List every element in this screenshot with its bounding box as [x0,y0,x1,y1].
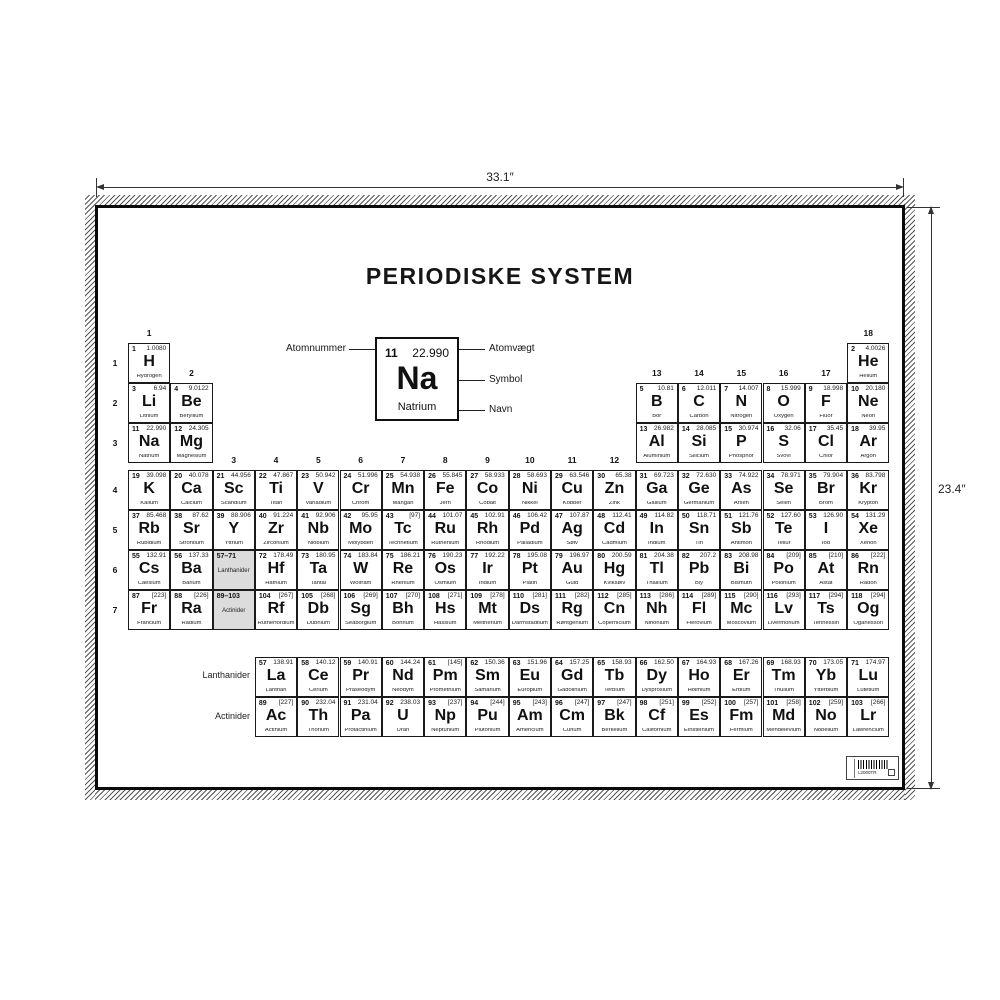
element-name: Nikkel [510,501,550,507]
element-name: Fermium [721,728,761,734]
atomic-number: 24 [344,473,352,480]
element-cell: 47107.87AgSølv [551,510,593,550]
element-symbol: Ni [510,480,550,498]
element-name: Lanthan [256,688,296,694]
element-symbol: Ho [679,667,719,685]
atomic-number: 28 [513,473,521,480]
element-cell: 3272.630GeGermanium [678,470,720,510]
period-number-label: 2 [108,399,122,408]
element-cell: 510.81BBor [636,383,678,423]
element-cell: 73180.95TaTantal [297,550,339,590]
element-name: Ruthenium [425,541,465,547]
atomic-weight: [243] [533,700,547,707]
lanthanide-cell: 60144.24NdNeodym [382,657,424,697]
element-symbol: N [721,393,761,411]
dimension-arrow-left-icon [96,184,104,190]
lanthanide-cell: 65158.93TbTerbium [593,657,635,697]
element-name: Caesium [129,581,169,587]
group-number-label: 1 [128,329,170,338]
element-cell: 44101.07RuRuthenium [424,510,466,550]
atomic-weight: [278] [490,593,504,600]
element-name: Vanadium [298,501,338,507]
element-cell: 815.999OOxygen [763,383,805,423]
element-cell: 4091.224ZrZirconium [255,510,297,550]
element-symbol: Fm [721,707,761,725]
atomic-number: 114 [682,593,693,600]
element-name: Neodym [383,688,423,694]
element-name: Meitnerium [467,621,507,627]
element-symbol: Rb [129,520,169,538]
element-name: Cerium [298,688,338,694]
element-cell: 1735.45ClChlor [805,423,847,463]
atomic-number: 87 [132,593,140,600]
atomic-number: 23 [301,473,309,480]
element-name: Oxygen [764,414,804,420]
period-number-label: 3 [108,439,122,448]
element-symbol: Tc [383,520,423,538]
placeholder-range: 57–71 [217,553,236,560]
element-symbol: Pt [510,560,550,578]
element-cell: 2144.956ScScandium [213,470,255,510]
lanthanide-cell: 66162.50DyDysprosium [636,657,678,697]
element-name: Kobber [552,501,592,507]
element-cell: 54131.29XeXenon [847,510,889,550]
element-cell: 612.011CCarbon [678,383,720,423]
element-name: Palladium [510,541,550,547]
element-symbol: Yb [806,667,846,685]
atomic-weight: [269] [363,593,377,600]
actinide-cell: 89[227]AcActinium [255,697,297,737]
element-symbol: Zn [594,480,634,498]
atomic-weight: 65.38 [615,473,631,480]
element-symbol: Kr [848,480,888,498]
atomic-weight: 58.693 [527,473,547,480]
atomic-weight: [282] [575,593,589,600]
element-cell: 4192.906NbNiobium [297,510,339,550]
atomic-number: 90 [301,700,309,707]
group-number-label: 18 [847,329,889,338]
atomic-number: 105 [301,593,313,600]
element-name: Rutherfordium [256,621,296,627]
atomic-weight: 196.97 [569,553,589,560]
actinide-cell: 103[266]LrLawrencium [847,697,889,737]
atomic-number: 110 [513,593,524,600]
element-name: Actinium [256,728,296,734]
element-cell: 117[294]TsTennessin [805,590,847,630]
element-name: Titan [256,501,296,507]
element-symbol: Og [848,600,888,618]
element-symbol: Te [764,520,804,538]
atomic-number: 102 [809,700,821,707]
atomic-number: 88 [174,593,182,600]
element-name: Polonium [764,581,804,587]
atomic-weight: 4.0026 [866,346,886,353]
element-cell: 76190.23OsOsmium [424,550,466,590]
actinide-cell: 102[259]NoNobelium [805,697,847,737]
atomic-weight: 101.07 [443,513,463,520]
element-cell: 2963.546CuKobber [551,470,593,510]
actinide-cell: 98[251]CfCalifornium [636,697,678,737]
element-name: Thallium [637,581,677,587]
element-name: Zirconium [256,541,296,547]
element-name: Indium [637,541,677,547]
atomic-weight: 207.2 [700,553,716,560]
element-symbol: Lr [848,707,888,725]
atomic-weight: [270] [406,593,420,600]
lanthanide-cell: 62150.36SmSamarium [466,657,508,697]
element-cell: 3478.971SeSelen [763,470,805,510]
lanthanide-cell: 63151.96EuEuropium [509,657,551,697]
element-symbol: Li [129,393,169,411]
group-number-label: 10 [509,456,551,465]
element-name: Brom [806,501,846,507]
element-symbol: Fe [425,480,465,498]
element-name: Argon [848,454,888,460]
atomic-number: 101 [767,700,779,707]
atomic-weight: [268] [321,593,335,600]
element-symbol: Ir [467,560,507,578]
atomic-number: 83 [724,553,732,560]
atomic-weight: 183.84 [358,553,378,560]
atomic-number: 54 [851,513,859,520]
legend-atomic-number: 11 [385,346,398,360]
atomic-weight: [257] [744,700,758,707]
element-symbol: Er [721,667,761,685]
element-cell: 1632.06SSvovl [763,423,805,463]
atomic-number: 43 [386,513,394,520]
element-name: Barium [171,581,211,587]
atomic-weight: 137.33 [189,553,209,560]
group-number-label: 12 [593,456,635,465]
atomic-number: 32 [682,473,690,480]
element-name: Platin [510,581,550,587]
width-extension-tick-left [96,178,97,197]
atomic-weight: 54.938 [400,473,420,480]
element-cell: 2451.996CrChrom [340,470,382,510]
atomic-weight: 32.06 [785,426,801,433]
element-symbol: Md [764,707,804,725]
atomic-number: 108 [428,593,440,600]
element-symbol: Si [679,433,719,451]
element-name: Terbium [594,688,634,694]
element-cell: 3988.906YYttrium [213,510,255,550]
element-symbol: P [721,433,761,451]
element-symbol: O [764,393,804,411]
atomic-weight: 74.922 [739,473,759,480]
hatch-border-left [85,195,95,800]
actinide-cell: 90232.04ThThorium [297,697,339,737]
atomic-weight: 79.904 [823,473,843,480]
element-name: Holmium [679,688,719,694]
atomic-number: 92 [386,700,394,707]
element-cell: 2350.942VVanadium [297,470,339,510]
atomic-number: 91 [344,700,352,707]
barcode-label: L2000TR [846,756,899,780]
element-name: Rubidium [129,541,169,547]
element-cell: 714.007NNitrogen [720,383,762,423]
atomic-weight: 192.22 [485,553,505,560]
element-symbol: Ge [679,480,719,498]
atomic-number: 4 [174,386,178,393]
element-cell: 88[226]RaRadium [170,590,212,630]
atomic-weight: 140.91 [358,660,378,667]
atomic-number: 104 [259,593,271,600]
atomic-number: 10 [851,386,859,393]
atomic-weight: 132.91 [146,553,166,560]
atomic-number: 70 [809,660,817,667]
element-symbol: Ru [425,520,465,538]
atomic-weight: [267] [279,593,293,600]
element-symbol: Pa [341,707,381,725]
element-cell: 2758.933CoCobalt [466,470,508,510]
width-dimension-line [98,187,902,188]
element-name: Bismuth [721,581,761,587]
element-symbol: C [679,393,719,411]
element-symbol: Co [467,480,507,498]
element-cell: 45102.91RhRhodium [466,510,508,550]
barcode-divider [854,759,855,778]
element-name: Tennessin [806,621,846,627]
element-symbol: Np [425,707,465,725]
atomic-number: 118 [851,593,862,600]
element-symbol: Nh [637,600,677,618]
height-dimension-label: 23.4″ [938,482,966,496]
element-cell: 116[293]LvLivermorium [763,590,805,630]
atomic-number: 16 [767,426,775,433]
atomic-weight: 15.999 [781,386,801,393]
element-cell: 79196.97AuGuld [551,550,593,590]
atomic-number: 117 [809,593,820,600]
element-symbol: Bh [383,600,423,618]
atomic-number: 99 [682,700,690,707]
element-name: Xenon [848,541,888,547]
placeholder-label: Actinider [214,608,254,614]
atomic-weight: 162.50 [654,660,674,667]
legend-line-atomnummer [349,349,375,350]
element-name: Lithium [129,414,169,420]
element-symbol: Mg [171,433,211,451]
element-name: Magnesium [171,454,211,460]
atomic-weight: 174.97 [866,660,886,667]
poster-title: PERIODISKE SYSTEM [98,263,902,290]
atomic-weight: 85.468 [146,513,166,520]
element-cell: 2247.867TiTitan [255,470,297,510]
atomic-number: 3 [132,386,136,393]
atomic-weight: [290] [744,593,758,600]
fblock-placeholder-cell: 89–103Actinider [213,590,255,630]
element-cell: 51121.76SbAntimon [720,510,762,550]
product-dimension-image: 33.1″ 23.4″ PERIODISKE SYSTEM 11 22.990 … [0,0,1000,1000]
atomic-number: 98 [640,700,648,707]
legend-line-navn [459,410,485,411]
atomic-weight: 28.085 [696,426,716,433]
element-symbol: Ar [848,433,888,451]
width-extension-tick-right [903,178,904,197]
element-symbol: Pm [425,667,465,685]
atomic-number: 77 [470,553,478,560]
atomic-weight: 173.05 [823,660,843,667]
atomic-weight: [226] [194,593,208,600]
legend-symbol: Na [377,360,457,397]
element-symbol: Eu [510,667,550,685]
element-name: Dubnium [298,621,338,627]
atomic-number: 5 [640,386,644,393]
element-cell: 53126.90IIod [805,510,847,550]
element-name: Gallium [637,501,677,507]
atomic-number: 60 [386,660,394,667]
element-symbol: Os [425,560,465,578]
atomic-weight: 180.95 [316,553,336,560]
atomic-number: 39 [217,513,225,520]
atomic-number: 103 [851,700,863,707]
atomic-number: 82 [682,553,690,560]
element-symbol: Cr [341,480,381,498]
element-name: Darmstadtium [510,621,550,627]
element-name: Californium [637,728,677,734]
element-name: Tin [679,541,719,547]
actinide-cell: 94[244]PuPlutonium [466,697,508,737]
legend-example-cell: 11 22.990 Na Natrium [375,337,459,421]
atomic-number: 6 [682,386,686,393]
element-name: Hafnium [256,581,296,587]
atomic-weight: 88.906 [231,513,251,520]
element-symbol: Ba [171,560,211,578]
element-name: Astat [806,581,846,587]
atomic-weight: 232.04 [316,700,336,707]
element-symbol: Sr [171,520,211,538]
element-symbol: Pu [467,707,507,725]
element-cell: 75186.21ReRhenium [382,550,424,590]
element-cell: 49.0122BeBeryllium [170,383,212,423]
element-cell: 86[222]RnRadon [847,550,889,590]
element-cell: 115[290]McMoscovium [720,590,762,630]
atomic-weight: 58.933 [485,473,505,480]
element-name: Flerovium [679,621,719,627]
legend-label-atomvaegt: Atomvægt [489,344,535,354]
atomic-number: 30 [597,473,605,480]
element-cell: 87[223]FrFrancium [128,590,170,630]
lanthanide-cell: 61[145]PmPromethium [424,657,466,697]
atomic-number: 64 [555,660,563,667]
atomic-number: 62 [470,660,478,667]
atomic-weight: [252] [702,700,716,707]
element-name: Molybden [341,541,381,547]
element-cell: 55132.91CsCaesium [128,550,170,590]
actinide-cell: 100[257]FmFermium [720,697,762,737]
element-symbol: Rf [256,600,296,618]
element-cell: 83208.98BiBismuth [720,550,762,590]
element-symbol: Br [806,480,846,498]
element-cell: 78195.08PtPlatin [509,550,551,590]
element-name: Silicium [679,454,719,460]
element-symbol: Bk [594,707,634,725]
element-name: Einsteinium [679,728,719,734]
atomic-weight: 39.95 [869,426,885,433]
period-number-label: 1 [108,359,122,368]
element-cell: 82207.2PbBly [678,550,720,590]
atomic-number: 13 [640,426,648,433]
atomic-number: 37 [132,513,140,520]
period-number-label: 4 [108,486,122,495]
group-number-label: 7 [382,456,424,465]
atomic-number: 40 [259,513,267,520]
element-symbol: H [129,353,169,371]
element-symbol: Pb [679,560,719,578]
atomic-number: 46 [513,513,521,520]
width-dimension-label: 33.1″ [450,170,550,184]
atomic-weight: [251] [659,700,673,707]
element-symbol: K [129,480,169,498]
element-name: Radon [848,581,888,587]
atomic-number: 35 [809,473,817,480]
atomic-weight: [247] [617,700,631,707]
atomic-number: 58 [301,660,309,667]
atomic-weight: 91.224 [273,513,293,520]
atomic-number: 106 [344,593,356,600]
legend-line-atomvaegt [459,349,485,350]
element-name: Bohrium [383,621,423,627]
atomic-number: 111 [555,593,566,600]
element-name: Seaborgium [341,621,381,627]
atomic-weight: 22.990 [146,426,166,433]
placeholder-label: Lanthanider [214,568,254,574]
atomic-number: 59 [344,660,352,667]
atomic-number: 69 [767,660,775,667]
element-name: Cadmium [594,541,634,547]
element-symbol: Mn [383,480,423,498]
atomic-number: 115 [724,593,735,600]
atomic-number: 33 [724,473,732,480]
atomic-number: 41 [301,513,309,520]
element-name: Curium [552,728,592,734]
atomic-weight: 18.998 [823,386,843,393]
element-cell: 111[282]RgRøntgenium [551,590,593,630]
element-cell: 36.94LiLithium [128,383,170,423]
atomic-number: 100 [724,700,736,707]
atomic-number: 8 [767,386,771,393]
atomic-weight: 168.93 [781,660,801,667]
height-extension-tick-top [907,207,940,208]
element-symbol: Cl [806,433,846,451]
element-symbol: Sg [341,600,381,618]
atomic-weight: 1.0080 [146,346,166,353]
element-name: Promethium [425,688,465,694]
element-symbol: Lu [848,667,888,685]
atomic-number: 95 [513,700,521,707]
element-symbol: Hs [425,600,465,618]
atomic-weight: 102.91 [485,513,505,520]
element-name: Niobium [298,541,338,547]
atomic-number: 116 [767,593,778,600]
group-number-label: 6 [340,456,382,465]
group-number-label: 5 [297,456,339,465]
element-name: Krypton [848,501,888,507]
element-name: Livermorium [764,621,804,627]
atomic-weight: 20.180 [866,386,886,393]
atomic-number: 72 [259,553,267,560]
legend-line-symbol [459,380,485,381]
atomic-number: 17 [809,426,817,433]
element-symbol: Ga [637,480,677,498]
atomic-weight: 50.942 [316,473,336,480]
atomic-number: 86 [851,553,859,560]
element-name: Iridium [467,581,507,587]
atomic-weight: [285] [617,593,631,600]
atomic-weight: [289] [702,593,716,600]
element-symbol: Dy [637,667,677,685]
element-name: Ytterbium [806,688,846,694]
element-symbol: Na [129,433,169,451]
